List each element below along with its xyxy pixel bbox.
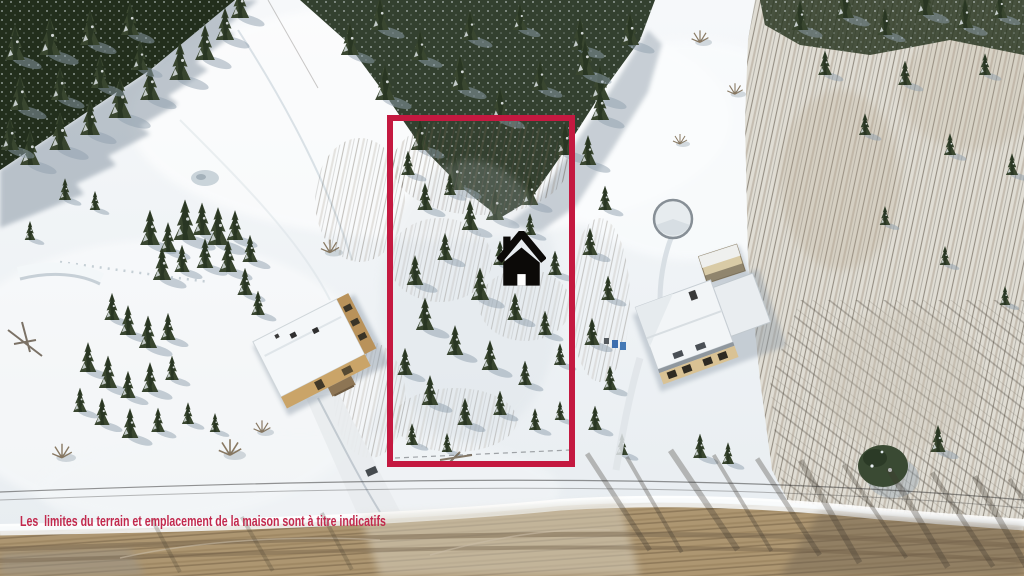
blue-bin — [612, 340, 618, 348]
blue-bin — [620, 342, 626, 350]
lot-boundary-overlay — [387, 115, 575, 467]
forest-right — [745, 0, 1024, 520]
listing-photo: Les limites du terrain et emplacement de… — [0, 0, 1024, 576]
disclaimer-text: Les limites du terrain et emplacement de… — [20, 514, 386, 531]
home-icon — [497, 231, 546, 288]
door — [517, 274, 525, 285]
